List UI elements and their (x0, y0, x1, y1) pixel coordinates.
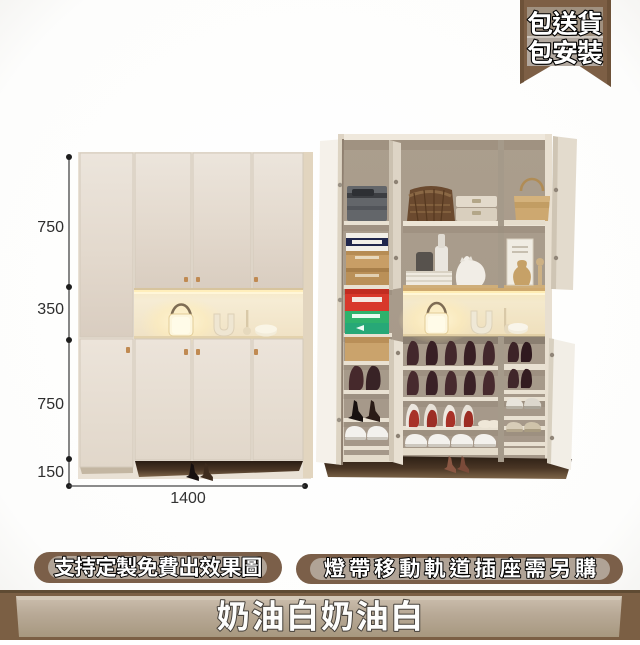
svg-text:150: 150 (37, 464, 64, 481)
svg-text:750: 750 (37, 396, 64, 413)
svg-text:350: 350 (37, 301, 64, 318)
svg-text:1400: 1400 (170, 490, 206, 507)
svg-text:750: 750 (37, 219, 64, 236)
